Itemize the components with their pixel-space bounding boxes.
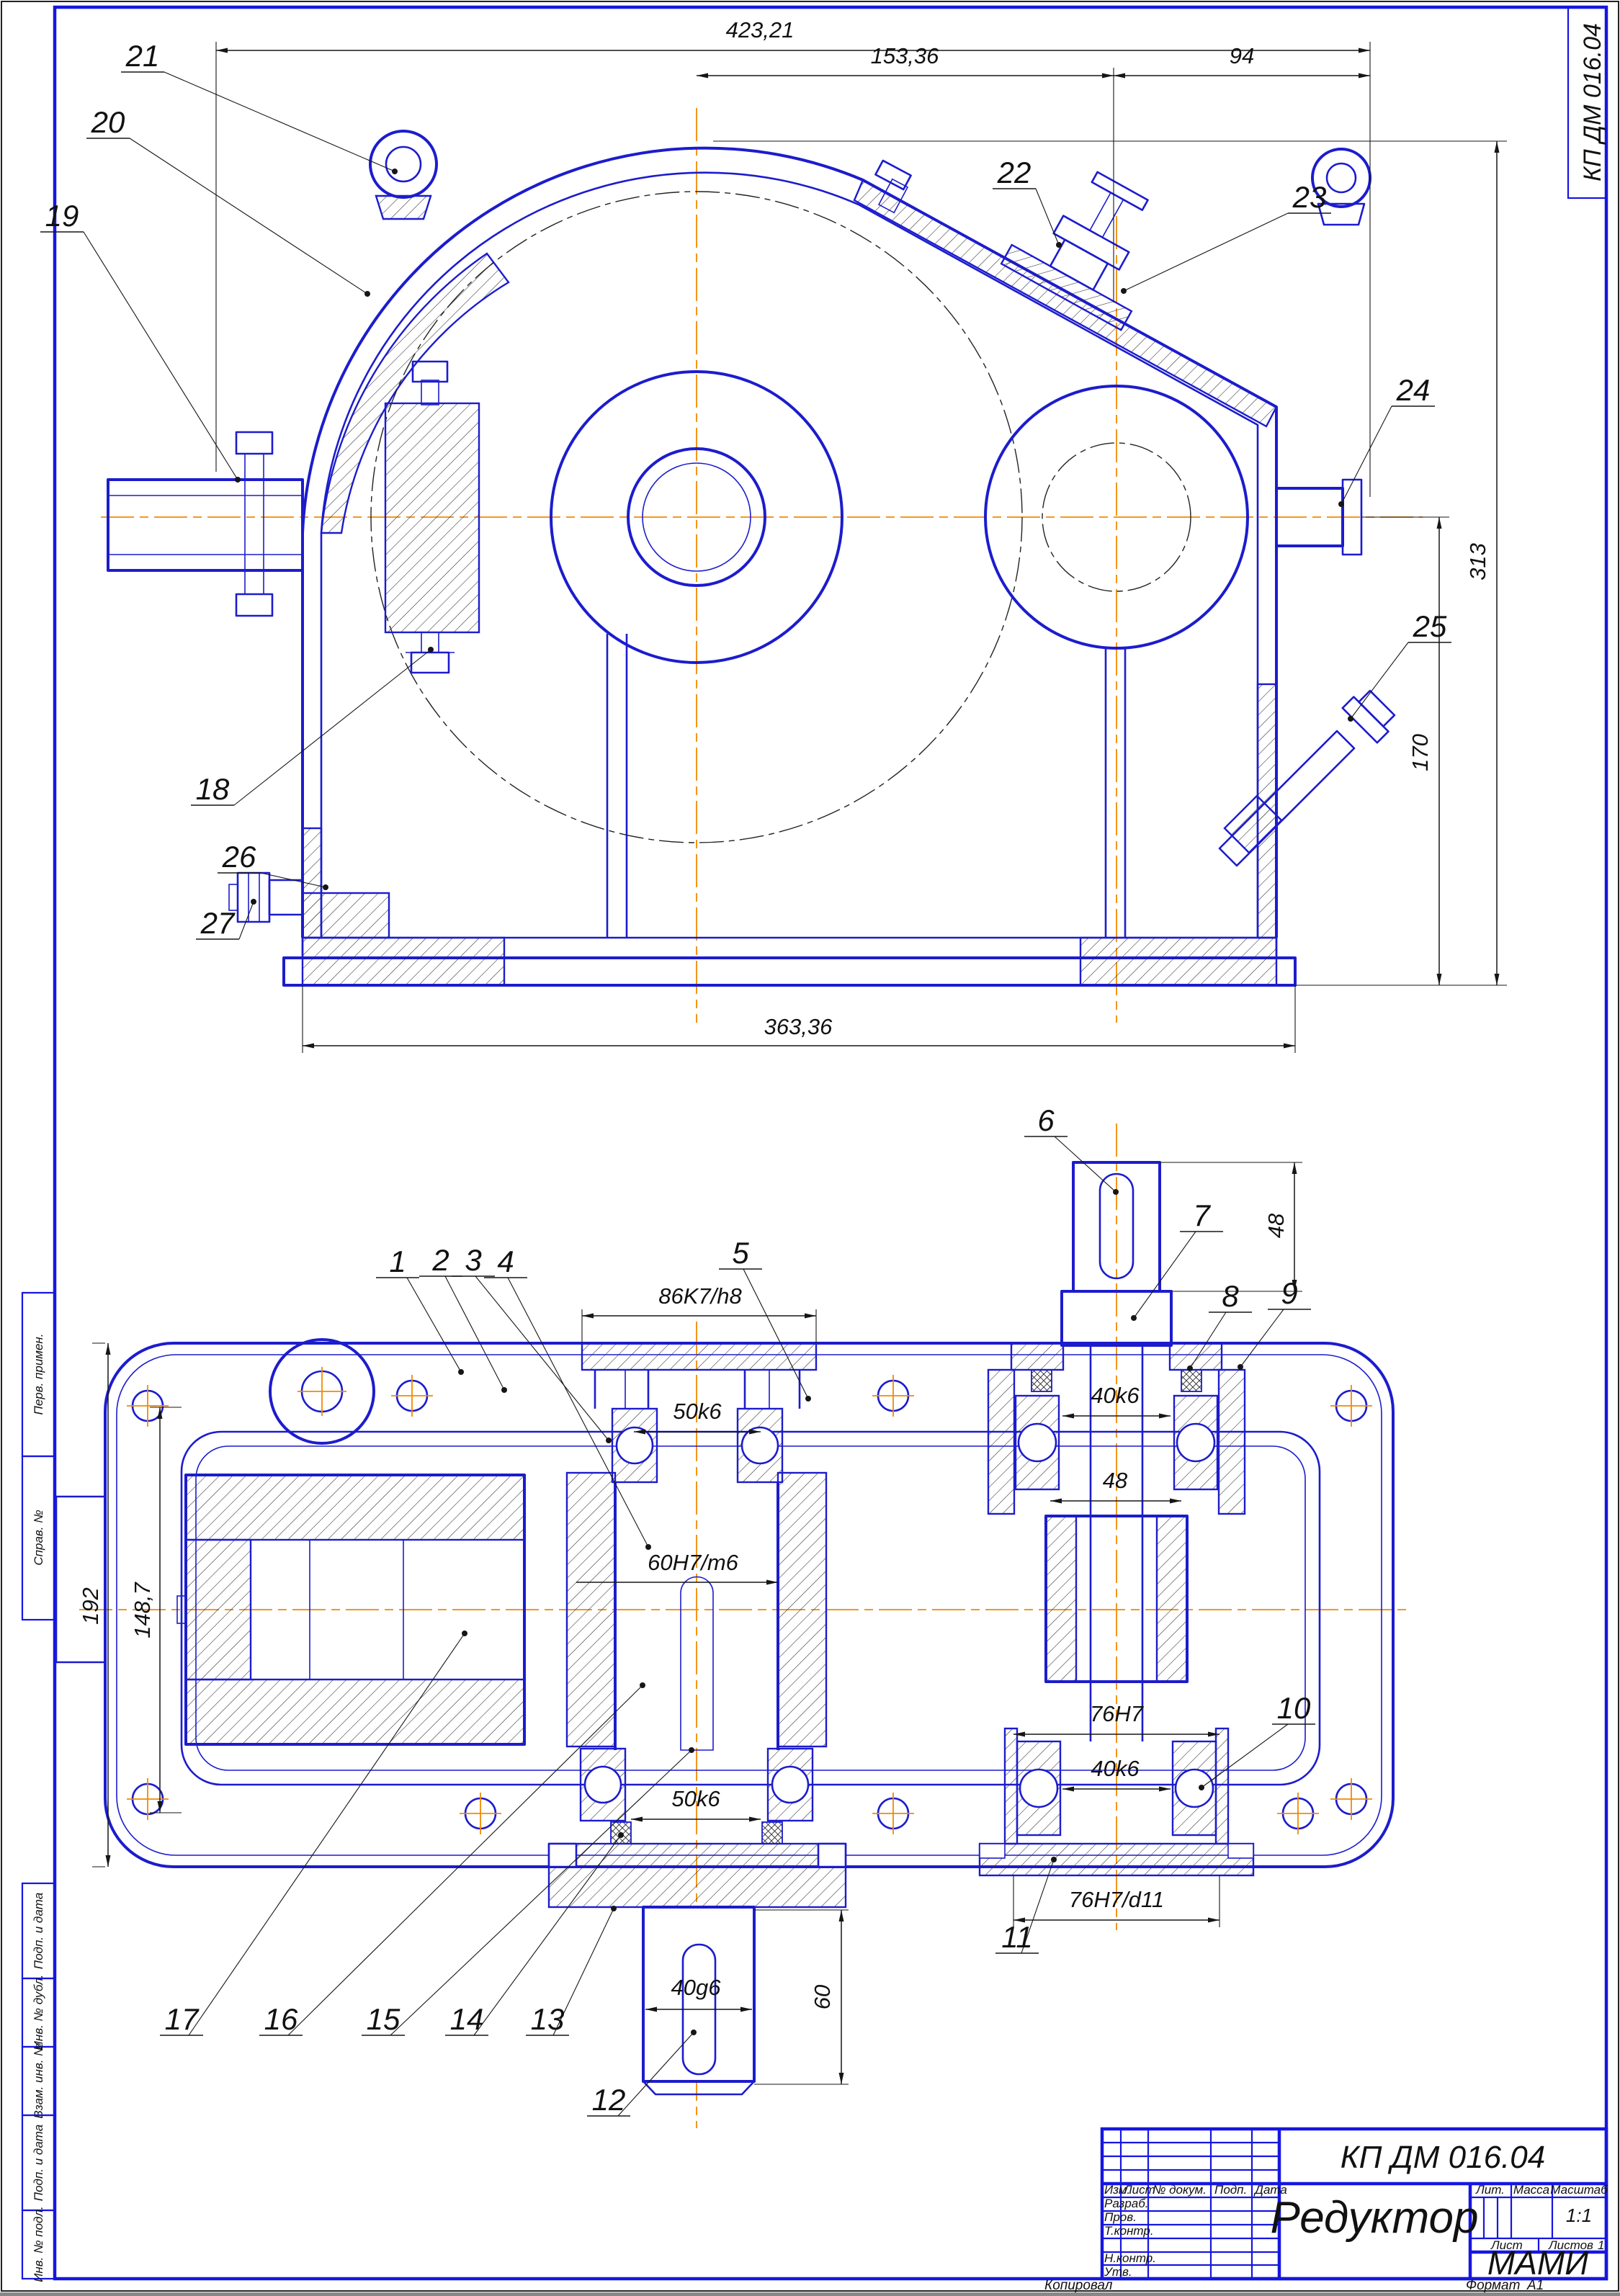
output-bottom-bearing (549, 1749, 846, 1907)
tb-list: Лист (1123, 2183, 1155, 2197)
footer-copied: Копировал (1044, 2278, 1113, 2292)
dim-overall-height: 313 (1465, 543, 1490, 580)
bearing-boss (385, 403, 479, 632)
svg-text:5: 5 (732, 1236, 749, 1270)
footer-format-value: А1 (1526, 2278, 1544, 2292)
tb-doc-number: КП ДМ 016.04 (1341, 2140, 1545, 2175)
plan-view: 86K7/h8 50k6 60H7/m6 40k6 48 48 76H7 40k… (56, 1103, 1412, 2128)
callout-25: 25 (1348, 609, 1451, 722)
callout-18: 18 (191, 647, 434, 806)
dim-output-shaft-end: 40g6 (671, 1975, 722, 2000)
tb-utv: Утв. (1104, 2265, 1132, 2279)
svg-text:14: 14 (450, 2002, 484, 2036)
left-box-label: Перв. примен. (32, 1334, 45, 1415)
svg-text:24: 24 (1396, 373, 1431, 407)
svg-text:15: 15 (367, 2002, 400, 2036)
svg-text:22: 22 (997, 156, 1031, 189)
output-shaft-end (643, 1907, 754, 2094)
front-view: 423,21 153,36 94 363,36 313 170 21 20 19 (40, 17, 1507, 1053)
dim-cup-fit: 76H7/d11 (1069, 1887, 1164, 1912)
svg-text:19: 19 (45, 199, 79, 233)
left-box-label: Подп. и дата (32, 1893, 45, 1969)
left-box-label: Справ. № (32, 1510, 45, 1565)
left-margin-boxes: Перв. примен. Справ. № Подп. и дата Инв.… (22, 1293, 55, 2282)
svg-text:16: 16 (264, 2002, 298, 2036)
dim-axis-to-right: 153,36 (871, 43, 940, 68)
callout-22: 22 (993, 156, 1062, 248)
tb-prov: Пров. (1104, 2210, 1137, 2224)
gearbox-assembly-drawing: КП ДМ 016.04 Перв. примен. Справ. № Подп… (0, 0, 1620, 2292)
callout-1: 1 (376, 1245, 464, 1375)
callout-27: 27 (196, 899, 256, 940)
dim-shaft-end-length: 48 (1263, 1213, 1289, 1238)
svg-text:2: 2 (431, 1243, 449, 1277)
callout-24: 24 (1338, 373, 1435, 507)
svg-text:11: 11 (1001, 1920, 1033, 1954)
dim-lower-bearing-seat: 50k6 (671, 1786, 720, 1811)
oil-dipstick (1220, 684, 1400, 938)
svg-text:26: 26 (222, 840, 256, 874)
dim-cup-bore: 76H7 (1090, 1701, 1145, 1726)
dim-wheel-seat: 60H7/m6 (648, 1550, 739, 1575)
dim-overall-width: 423,21 (726, 17, 795, 42)
tb-razrab: Разраб. (1104, 2197, 1149, 2210)
svg-text:8: 8 (1222, 1279, 1239, 1313)
callout-13: 13 (526, 1906, 617, 2036)
tb-doc-num: № докум. (1153, 2183, 1207, 2197)
svg-text:27: 27 (200, 906, 236, 940)
dim-inner-width-plan: 148,7 (130, 1581, 155, 1638)
callout-7: 7 (1131, 1198, 1223, 1321)
tb-lit: Лит. (1475, 2183, 1505, 2197)
svg-text:6: 6 (1037, 1103, 1055, 1137)
dim-output-end-length: 60 (810, 1985, 835, 2009)
svg-text:25: 25 (1413, 609, 1447, 643)
dim-input-upper-bearing: 40k6 (1091, 1383, 1140, 1408)
dim-bearing-span: 48 (1103, 1468, 1128, 1493)
left-shaft-end (108, 432, 303, 616)
dim-base-width: 363,36 (764, 1014, 833, 1039)
page-frame: КП ДМ 016.04 (1, 1, 1619, 2291)
callout-5: 5 (719, 1236, 811, 1402)
svg-text:13: 13 (531, 2002, 565, 2036)
dim-input-lower-bearing: 40k6 (1091, 1756, 1140, 1781)
left-box-label: Подп. и дата (32, 2125, 45, 2201)
eye-bolt-left (370, 131, 437, 219)
callout-9: 9 (1238, 1276, 1311, 1370)
dim-cap-fit: 86K7/h8 (658, 1283, 742, 1309)
svg-text:17: 17 (165, 2002, 200, 2036)
tb-nkontr: Н.контр. (1104, 2251, 1156, 2265)
callout-23: 23 (1121, 180, 1331, 294)
svg-text:1: 1 (389, 1245, 406, 1278)
callout-21: 21 (121, 39, 398, 174)
svg-text:7: 7 (1193, 1198, 1211, 1232)
svg-text:21: 21 (125, 39, 160, 73)
tb-sheets-value: 1 (1598, 2238, 1604, 2252)
svg-text:10: 10 (1277, 1691, 1311, 1725)
corner-stamp-text: КП ДМ 016.04 (1579, 23, 1606, 181)
svg-text:3: 3 (465, 1243, 481, 1277)
left-box-label: Инв. № дубл. (32, 1975, 45, 2050)
tb-masshtab: Масштаб (1550, 2183, 1608, 2197)
tb-massa: Масса (1513, 2183, 1549, 2197)
svg-text:4: 4 (497, 1245, 514, 1278)
svg-text:23: 23 (1292, 180, 1327, 214)
callout-20: 20 (86, 105, 370, 297)
callout-19: 19 (40, 199, 241, 483)
title-block: Изм. Лист № докум. Подп. Дата Разраб. Пр… (1102, 2129, 1608, 2282)
callout-6: 6 (1024, 1103, 1119, 1195)
tb-tkontr: Т.контр. (1104, 2224, 1154, 2238)
left-box-label: Взам. инв. № (32, 2042, 45, 2118)
dim-upper-bearing-seat: 50k6 (673, 1399, 722, 1424)
svg-text:18: 18 (196, 772, 230, 806)
dim-right-offset: 94 (1230, 43, 1254, 68)
svg-text:12: 12 (592, 2083, 626, 2117)
tb-product-title: Редуктор (1271, 2193, 1479, 2243)
drawing-sheet: КП ДМ 016.04 Перв. примен. Справ. № Подп… (0, 0, 1620, 2292)
tb-podp: Подп. (1214, 2183, 1247, 2197)
dim-axis-height: 170 (1408, 734, 1433, 771)
footer-format-label: Формат (1466, 2278, 1520, 2292)
svg-text:20: 20 (91, 105, 125, 139)
left-box-label: Инв. № подл. (32, 2206, 45, 2282)
dim-overall-width-plan: 192 (78, 1587, 103, 1625)
svg-text:9: 9 (1281, 1276, 1297, 1310)
tb-organization: МАМИ (1487, 2244, 1588, 2282)
tb-scale-value: 1:1 (1566, 2205, 1592, 2226)
